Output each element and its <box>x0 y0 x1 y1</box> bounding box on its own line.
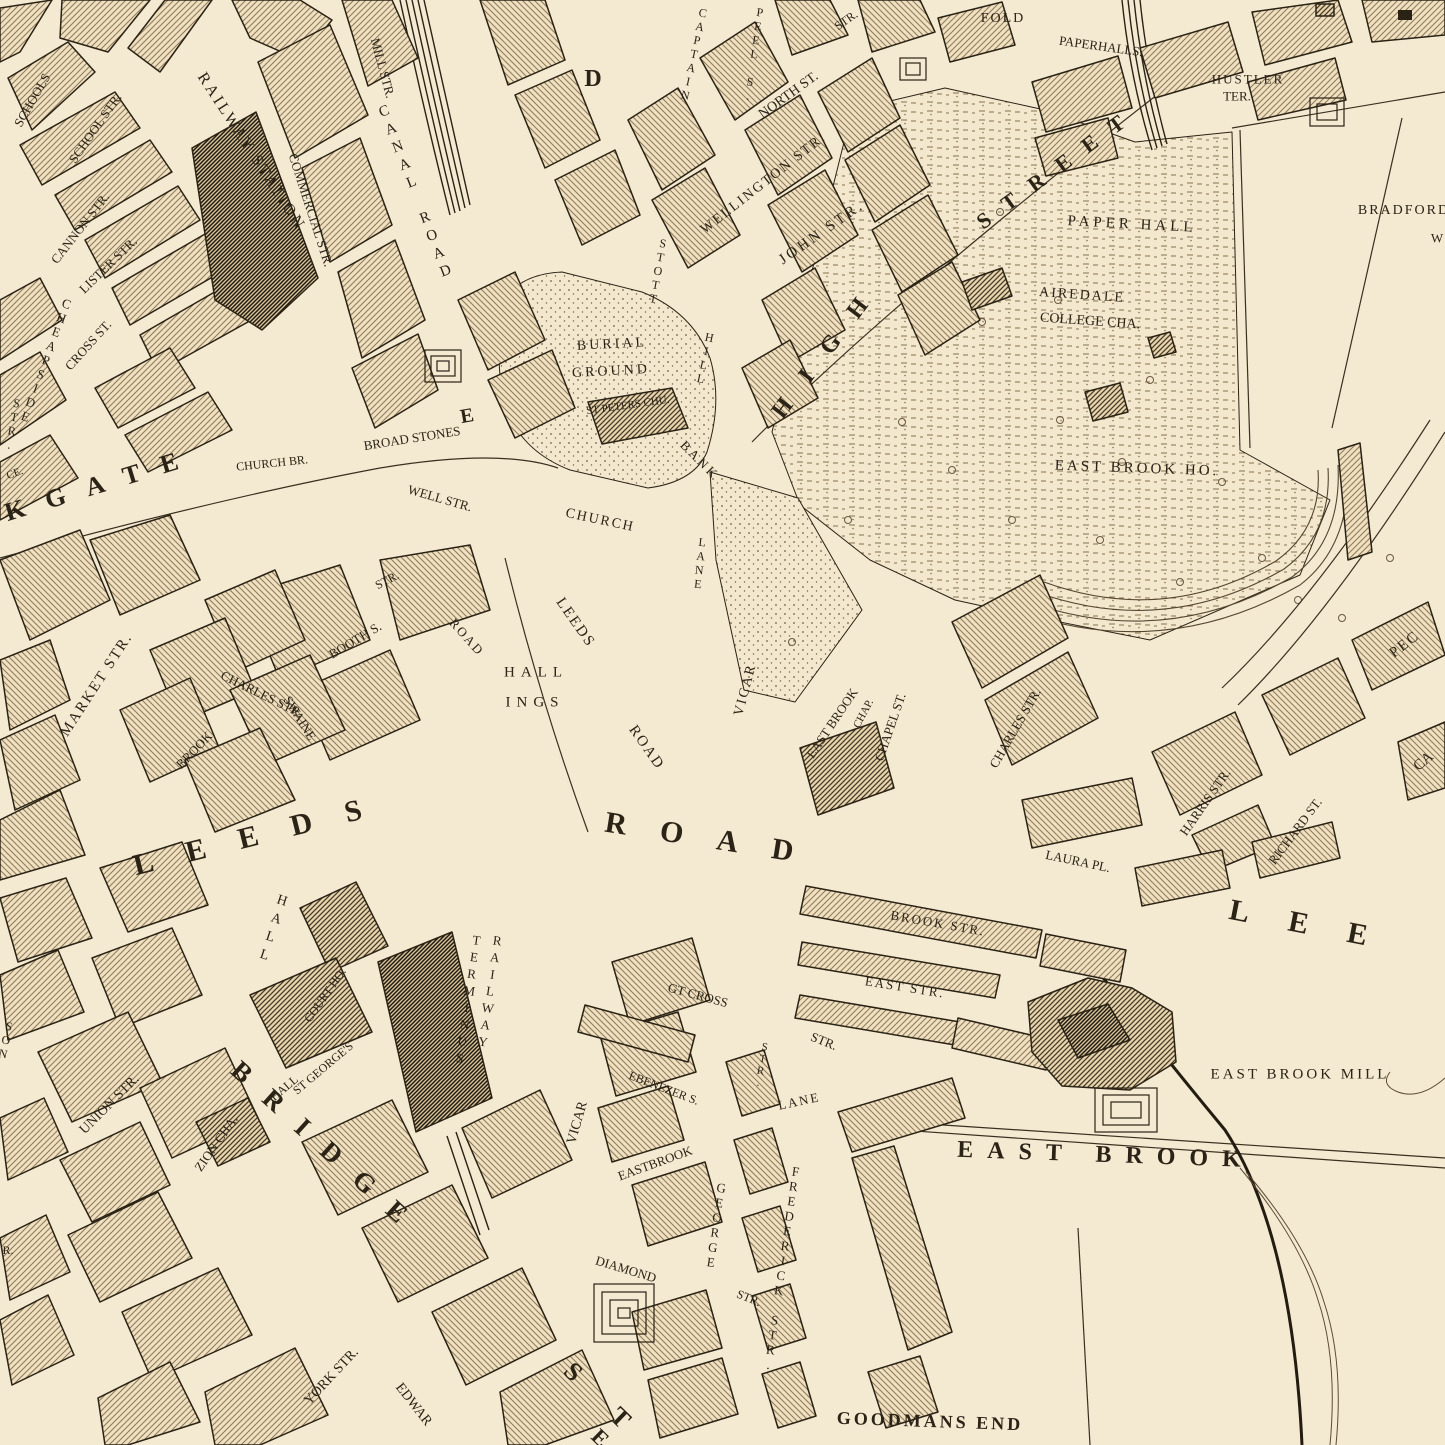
map-label-street-19: STREET <box>973 101 1144 233</box>
map-label-wellington-str-16: WELLINGTON STR. <box>699 131 830 237</box>
map-label-peel-s-13: PEEL S. <box>741 5 767 104</box>
map-label-union-str-62: UNION STR. <box>78 1073 143 1138</box>
map-label-lane-77: LANE <box>777 1090 821 1112</box>
map-label-ca-96: CA <box>1411 750 1437 775</box>
map-label-captain-12: CAPTAIN <box>678 5 710 103</box>
map-label-railway-station-7: RAILWAY STATION <box>194 70 308 234</box>
map-label-school-str-1: SCHOOL STR. <box>66 91 124 166</box>
map-label-st-george-s-54: ST GEORGE'S <box>291 1040 356 1097</box>
map-label-r-65: R. <box>2 1244 13 1256</box>
map-label-hall-52: HALL <box>254 892 291 969</box>
map-label-booth-s-42: BOOTH S. <box>327 619 384 660</box>
map-label-w-94: W <box>1431 232 1443 245</box>
map-label-church-25: CHURCH <box>564 507 636 535</box>
map-label-zion-cha-63: ZION CHA. <box>192 1113 240 1174</box>
map-label-st-peters-chu-24: ST PETERS CHU. <box>586 395 671 418</box>
map-label-john-str-17: JOHN STR. <box>777 198 868 268</box>
map-label-burial-22: BURIAL <box>577 336 648 354</box>
map-label-laura-pl-97: LAURA PL. <box>1044 848 1111 874</box>
map-label-road-44: ROAD <box>447 616 487 658</box>
map-label-stott-20: STOTT <box>646 235 670 306</box>
map-label-ter-88: TER. <box>1223 90 1251 103</box>
map-label-court-ho-53: COURT HO. <box>302 966 348 1025</box>
map-label-goodmans-end-84: GOODMANS END <box>836 1409 1023 1433</box>
map-label-brook-str-75: BROOK STR. <box>890 908 987 937</box>
map-label-harris-str-98: HARRIS STR. <box>1177 766 1232 837</box>
map-label-lane-36: LANE <box>691 535 709 592</box>
map-label-east-brook-83: EAST BROOK <box>957 1138 1255 1172</box>
map-label-broad-stones-28: BROAD STONES <box>363 424 461 452</box>
map-label-charles-str-41: CHARLES STR. <box>987 686 1043 770</box>
map-label-market-str-45: MARKET STR. <box>58 631 136 740</box>
map-label-college-cha-91: COLLEGE CHA. <box>1039 312 1140 333</box>
map-label-canal-road-10: CANAL ROAD <box>374 102 456 285</box>
map-label-kgate-31: KGATE <box>2 442 203 526</box>
map-label-cross-st-4: CROSS ST. <box>62 318 113 373</box>
map-label-ce-66: CE. <box>5 466 25 482</box>
map-label-str-73: STR. <box>751 1040 770 1089</box>
map-label-mill-str-9: MILL STR. <box>369 37 398 100</box>
map-canvas: SCHOOLSSCHOOL STR.CANNON STR.LISTER STR.… <box>0 0 1445 1445</box>
map-label-hustler-87: HUSTLER <box>1212 73 1285 86</box>
map-label-high-18: HIGH <box>767 273 888 423</box>
map-label-e-30: E <box>459 405 476 427</box>
map-label-str-43: STR. <box>373 569 401 591</box>
map-label-richard-st-99: RICHARD ST. <box>1266 795 1324 866</box>
map-label-bank-26: BANK <box>678 438 722 482</box>
map-label-str-6: STR. <box>2 395 24 452</box>
map-label-ebenezer-s-70: EBENEZER S. <box>627 1069 700 1107</box>
map-label-schools-0: SCHOOLS <box>12 71 53 129</box>
map-label-church-br-27: CHURCH BR. <box>236 453 309 472</box>
map-label-leeds-32: LEEDS <box>553 595 598 650</box>
map-label-chap-39: CHAP. <box>852 698 876 730</box>
map-label-paper-hall-89: PAPER HALL <box>1067 214 1197 236</box>
map-label-airedale-90: AIREDALE <box>1039 286 1126 306</box>
map-label-str-14: STR. <box>832 8 859 32</box>
map-label-well-str-29: WELL STR. <box>407 483 474 514</box>
map-label-road-33: ROAD <box>625 723 666 773</box>
map-label-pec-95: PEC <box>1387 629 1423 661</box>
map-label-str-79: STR. <box>735 1288 763 1308</box>
map-label-lister-str-3: LISTER STR. <box>77 234 140 295</box>
map-label-d-11: D <box>584 67 601 91</box>
map-label-eastbrook-76: EASTBROOK <box>616 1144 694 1183</box>
map-label-str-72: STR. <box>809 1030 839 1052</box>
map-label-road-50: ROAD <box>603 808 829 873</box>
map-label-east-str-74: EAST STR. <box>864 974 946 999</box>
map-label-bradford-93: BRADFORD <box>1358 204 1445 218</box>
map-label-swaine-48: SWAINE <box>281 694 318 743</box>
map-label-cannon-str-2: CANNON STR. <box>48 190 111 266</box>
map-label-fold-85: FOLD <box>981 12 1026 26</box>
map-label-edwar-68: EDWAR <box>392 1381 434 1429</box>
map-label-vicar-69: VICAR <box>565 1100 590 1146</box>
map-label-hall-34: HALL <box>504 666 568 681</box>
map-label-s-59: S <box>559 1358 587 1387</box>
map-labels-layer: SCHOOLSSCHOOL STR.CANNON STR.LISTER STR.… <box>0 0 1445 1445</box>
map-label-e-61: E <box>587 1425 613 1445</box>
map-label-york-str-67: YORK STR. <box>302 1346 362 1408</box>
map-label-frederick-str-81: FREDERICK STR. <box>761 1163 803 1373</box>
map-label-leeds-49: LEEDS <box>130 787 398 881</box>
map-label-chapel-st-40: CHAPEL ST. <box>872 691 907 762</box>
map-label-east-brook-mill-82: EAST BROOK MILL <box>1211 1068 1390 1083</box>
map-label-brook-47: BROOK <box>174 729 215 771</box>
map-label-vicar-37: VICAR <box>732 662 759 717</box>
map-label-east-brook-ho-92: EAST BROOK HO. <box>1054 459 1219 480</box>
map-label-ground-23: GROUND <box>572 363 651 381</box>
map-label-paperhalls-86: PAPERHALLS. <box>1058 34 1143 59</box>
map-label-ings-35: INGS <box>505 696 564 711</box>
map-label-lee-51: LEE <box>1227 895 1409 959</box>
map-label-bridge-58: BRIDGE <box>226 1056 430 1244</box>
map-label-george-80: GEORGE <box>703 1180 728 1271</box>
map-label-diamond-78: DIAMOND <box>594 1254 658 1285</box>
map-label-north-st-15: NORTH ST. <box>757 70 822 122</box>
map-label-son-64: SON <box>0 1018 16 1062</box>
map-label-gt-cross-71: GT CROSS <box>667 981 730 1009</box>
map-label-hill-21: HILL <box>693 329 716 386</box>
